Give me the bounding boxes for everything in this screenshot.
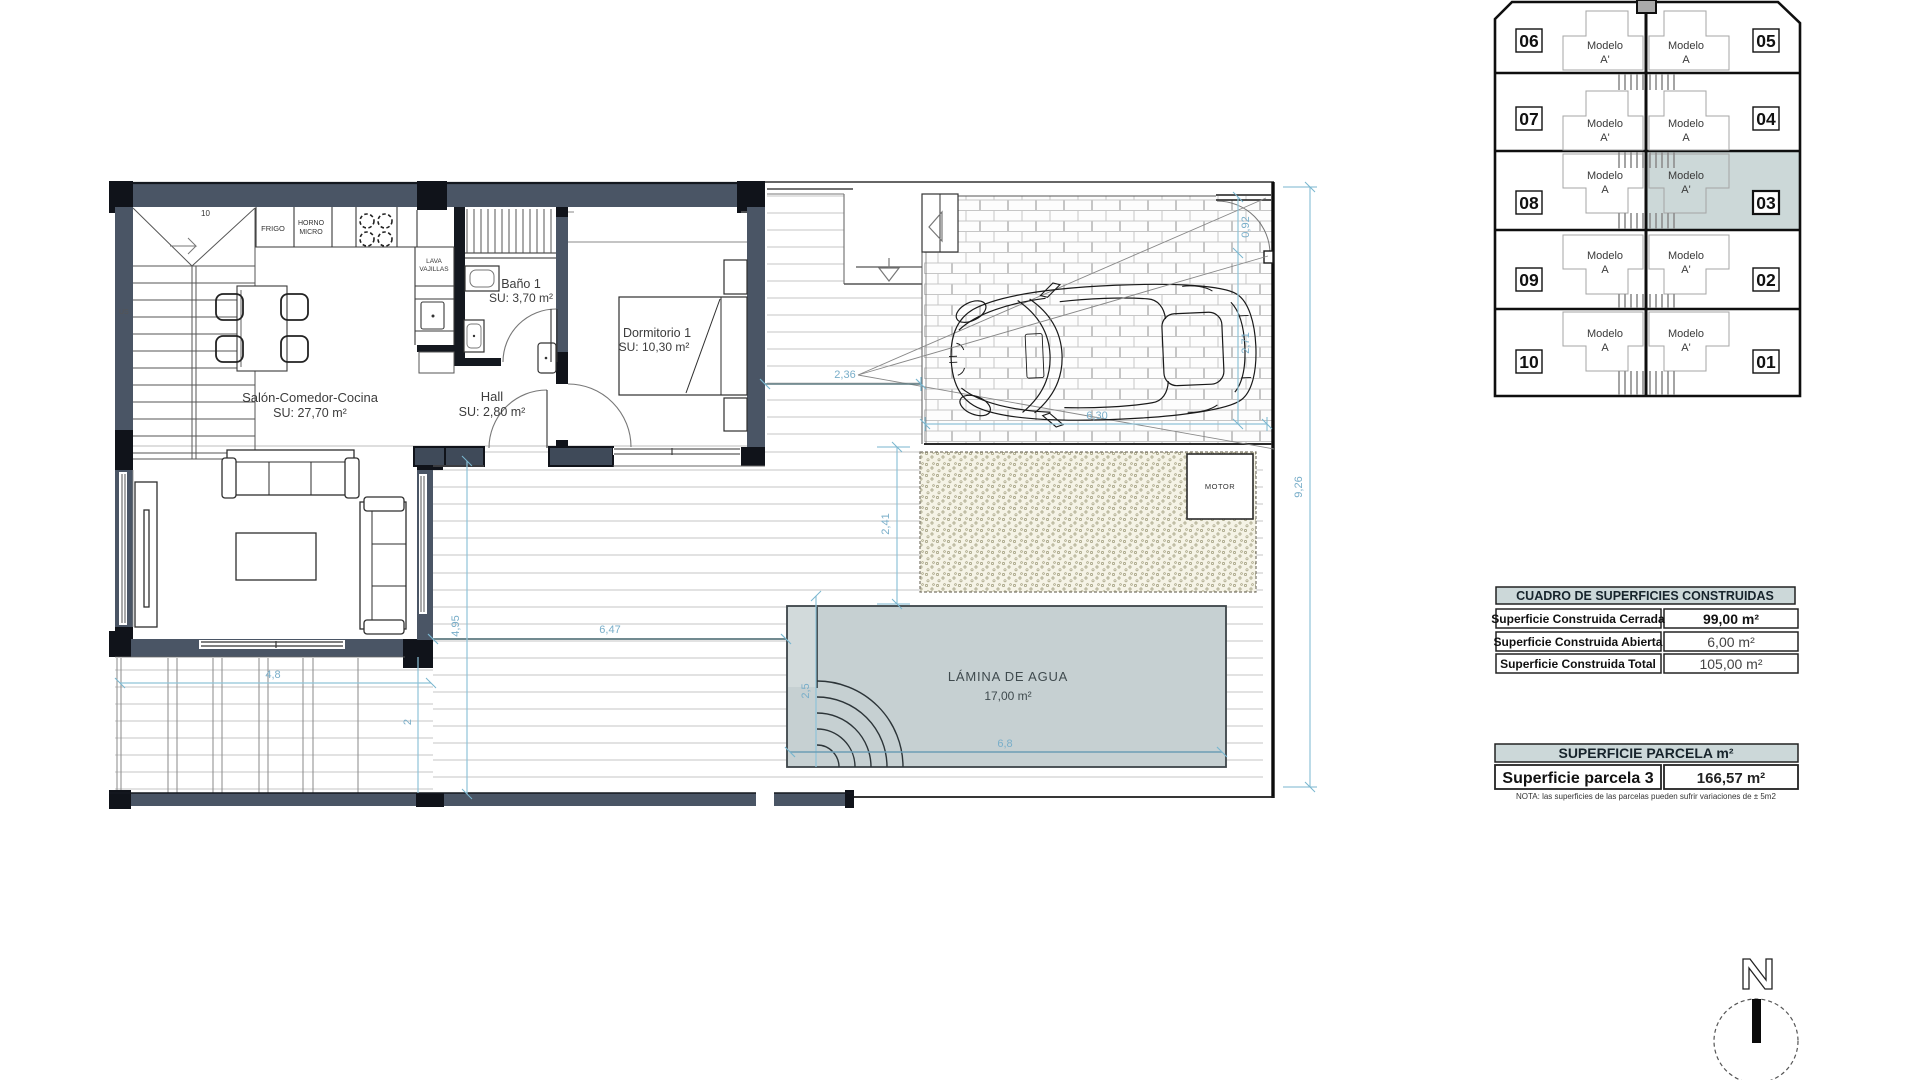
svg-text:2,5: 2,5 — [800, 683, 812, 698]
svg-text:08: 08 — [1519, 193, 1539, 213]
svg-text:Modelo: Modelo — [1587, 40, 1623, 52]
svg-text:SU: 2,80 m²: SU: 2,80 m² — [459, 405, 526, 419]
svg-text:A: A — [1601, 264, 1609, 276]
svg-text:Modelo: Modelo — [1587, 170, 1623, 182]
svg-text:A: A — [1682, 132, 1690, 144]
svg-text:10: 10 — [1519, 352, 1539, 372]
svg-text:A: A — [1601, 184, 1609, 196]
svg-text:NOTA: las superficies de las p: NOTA: las superficies de las parcelas pu… — [1516, 792, 1776, 801]
svg-text:Modelo: Modelo — [1587, 328, 1623, 340]
svg-text:A: A — [1682, 54, 1690, 66]
svg-text:A': A' — [1681, 264, 1690, 276]
svg-text:2,71: 2,71 — [1240, 332, 1252, 353]
svg-text:Hall: Hall — [481, 389, 504, 404]
svg-text:09: 09 — [1519, 270, 1539, 290]
svg-text:VAJILLAS: VAJILLAS — [419, 266, 449, 273]
svg-text:Modelo: Modelo — [1587, 118, 1623, 130]
svg-text:6,00 m²: 6,00 m² — [1707, 634, 1755, 650]
svg-text:9,26: 9,26 — [1293, 476, 1305, 497]
svg-text:A: A — [1601, 342, 1609, 354]
svg-text:2,36: 2,36 — [834, 369, 855, 381]
svg-text:6,47: 6,47 — [599, 624, 620, 636]
svg-text:SU: 10,30 m²: SU: 10,30 m² — [619, 340, 690, 354]
svg-text:Modelo: Modelo — [1668, 328, 1704, 340]
svg-text:06: 06 — [1519, 31, 1539, 51]
svg-text:6,30: 6,30 — [1086, 410, 1107, 422]
svg-text:105,00 m²: 105,00 m² — [1699, 656, 1762, 672]
svg-text:US: US — [119, 309, 129, 316]
svg-text:Superficie Construida Abierta: Superficie Construida Abierta — [1494, 635, 1663, 649]
svg-text:4,8: 4,8 — [265, 669, 280, 681]
svg-text:HORNO: HORNO — [298, 220, 325, 227]
svg-text:Modelo: Modelo — [1668, 118, 1704, 130]
svg-text:02: 02 — [1756, 270, 1776, 290]
svg-text:Modelo: Modelo — [1668, 40, 1704, 52]
svg-text:SUPERFICIE PARCELA m²: SUPERFICIE PARCELA m² — [1558, 745, 1733, 761]
svg-text:Baño 1: Baño 1 — [501, 277, 541, 291]
svg-text:SU: 27,70 m²: SU: 27,70 m² — [273, 406, 347, 420]
svg-text:Dormitorio 1: Dormitorio 1 — [623, 326, 691, 340]
svg-text:LAVA: LAVA — [426, 258, 442, 265]
svg-text:Superficie Construida Total: Superficie Construida Total — [1500, 657, 1656, 671]
svg-text:17,00 m²: 17,00 m² — [984, 689, 1031, 703]
svg-text:A': A' — [1681, 342, 1690, 354]
svg-text:SU: 3,70 m²: SU: 3,70 m² — [489, 291, 553, 305]
svg-text:10: 10 — [201, 209, 210, 218]
svg-text:03: 03 — [1756, 193, 1776, 213]
svg-text:05: 05 — [1756, 31, 1776, 51]
svg-text:A': A' — [1681, 184, 1690, 196]
svg-text:Modelo: Modelo — [1587, 250, 1623, 262]
svg-text:Salón-Comedor-Cocina: Salón-Comedor-Cocina — [242, 390, 379, 405]
svg-text:2,41: 2,41 — [880, 513, 892, 534]
svg-text:Superficie Construida Cerrada: Superficie Construida Cerrada — [1491, 612, 1665, 626]
svg-text:04: 04 — [1756, 109, 1776, 129]
svg-text:07: 07 — [1519, 109, 1538, 129]
svg-text:99,00 m²: 99,00 m² — [1703, 611, 1759, 627]
svg-text:0,92: 0,92 — [1240, 216, 1252, 237]
svg-text:2: 2 — [402, 719, 414, 725]
svg-text:01: 01 — [1756, 352, 1776, 372]
svg-text:FRIGO: FRIGO — [261, 224, 285, 233]
svg-text:6,8: 6,8 — [997, 738, 1012, 750]
svg-text:166,57 m²: 166,57 m² — [1697, 770, 1765, 787]
svg-text:Modelo: Modelo — [1668, 170, 1704, 182]
svg-text:A': A' — [1600, 132, 1609, 144]
svg-text:MICRO: MICRO — [299, 229, 323, 236]
svg-text:Modelo: Modelo — [1668, 250, 1704, 262]
svg-text:A': A' — [1600, 54, 1609, 66]
svg-text:CUADRO DE SUPERFICIES CONSTRUI: CUADRO DE SUPERFICIES CONSTRUIDAS — [1516, 589, 1774, 603]
svg-text:4,95: 4,95 — [450, 615, 462, 636]
svg-text:MOTOR: MOTOR — [1205, 482, 1235, 491]
svg-text:LÁMINA DE AGUA: LÁMINA DE AGUA — [948, 669, 1068, 684]
svg-text:Superficie parcela 3: Superficie parcela 3 — [1502, 770, 1653, 787]
